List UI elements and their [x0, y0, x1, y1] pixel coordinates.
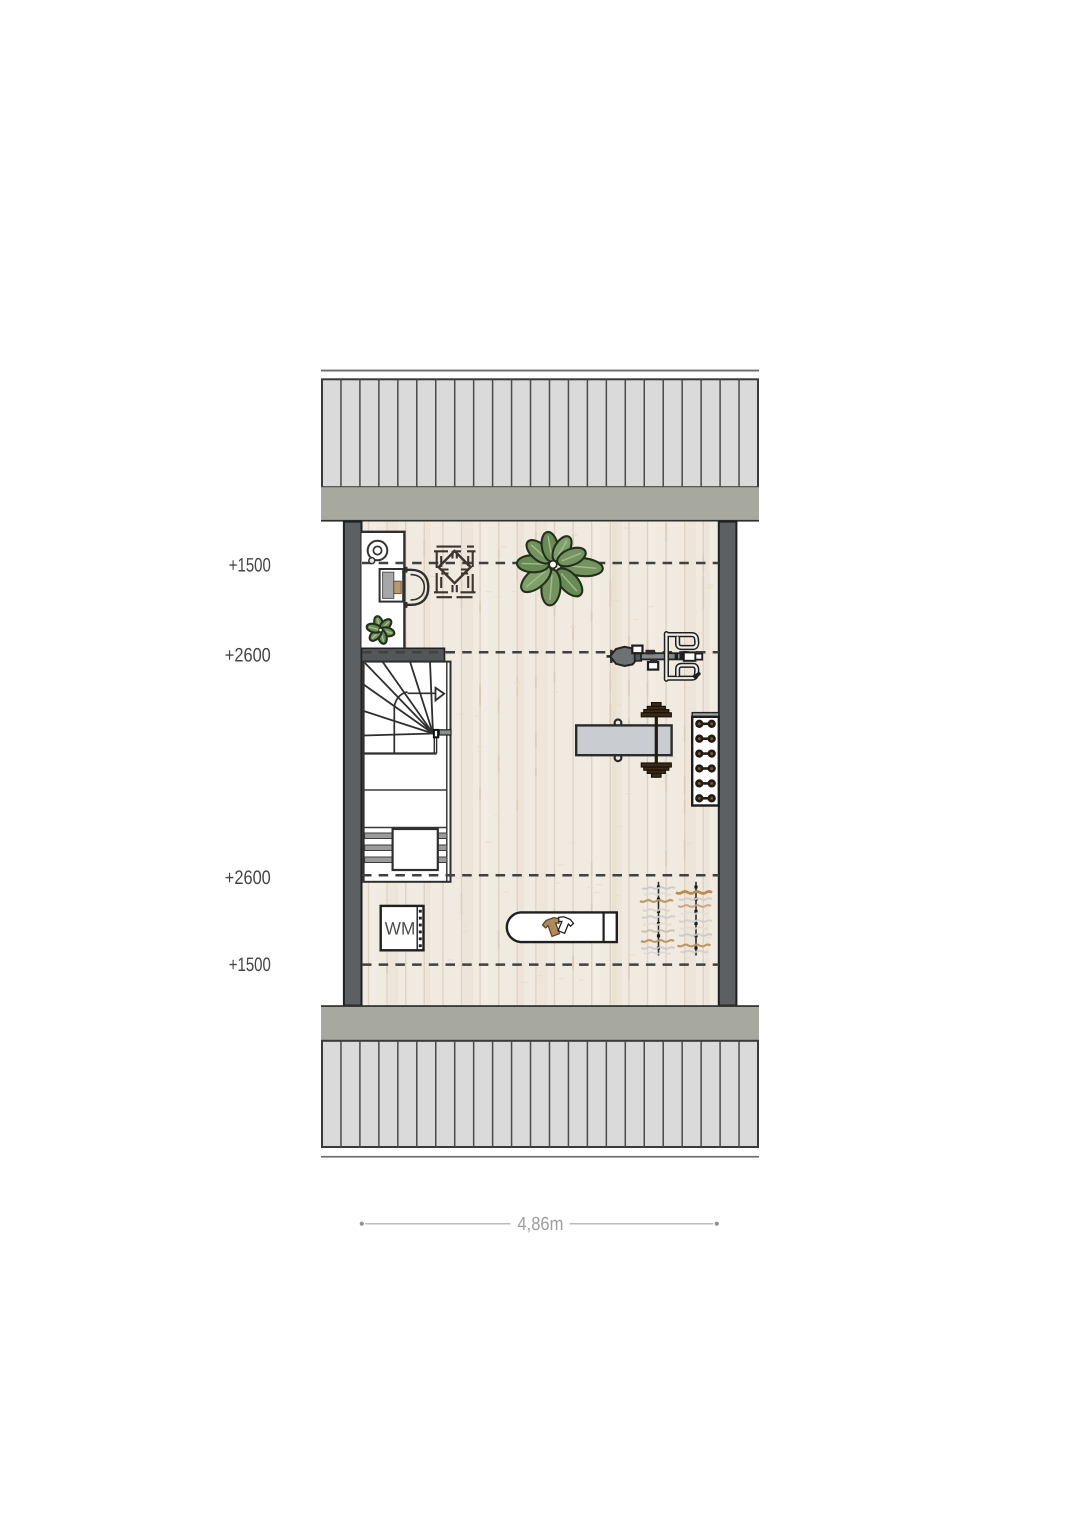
svg-text:+1500: +1500: [229, 555, 271, 577]
svg-text:+1500: +1500: [229, 954, 271, 976]
svg-text:+2600: +2600: [225, 645, 271, 667]
svg-text:+2600: +2600: [225, 867, 271, 889]
svg-text:4,86m: 4,86m: [517, 1214, 563, 1235]
svg-text:WM: WM: [385, 918, 416, 938]
